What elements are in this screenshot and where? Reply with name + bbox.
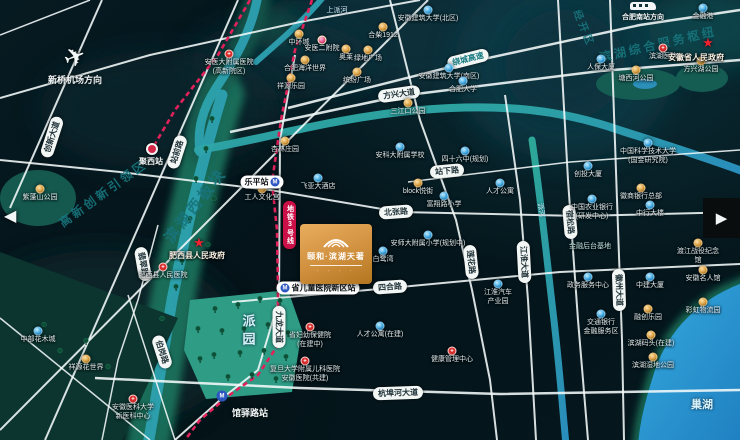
poi-landmark-dot [644, 305, 653, 314]
project-emblem-icon [319, 231, 353, 249]
poi-label: 安徽建筑大学(南区) [419, 73, 480, 82]
metro-station-badge: 乐平站M [241, 176, 284, 189]
poi-label: 金融港 [693, 13, 714, 22]
poi-landmark-dot [36, 185, 45, 194]
district-label: 经开区 [571, 7, 600, 49]
poi-label: 合肥大学 [449, 86, 477, 95]
poi-label: 滨湖码头(在建) [628, 340, 675, 349]
metro-logo-icon: M [271, 178, 280, 187]
poi-label: 四十六中(规划) [442, 156, 489, 165]
airplane-icon: ✈ [59, 39, 91, 76]
poi-label: 中国科学技术大学 (国金研究院) [620, 148, 676, 166]
poi-building-dot [597, 55, 606, 64]
poi-label: 创投大厦 [574, 171, 602, 180]
poi-building-dot [646, 201, 655, 210]
poi-building-dot [424, 231, 433, 240]
poi-landmark-dot [694, 239, 703, 248]
poi-landmark-dot [379, 23, 388, 32]
poi-label: 安医大附属医院 (高新院区) [205, 59, 254, 77]
poi-landmark-dot [699, 266, 708, 275]
poi-landmark-dot [295, 30, 304, 39]
poi-hospital-dot: + [659, 44, 668, 53]
water-label: 上派河 [327, 5, 348, 15]
poi-label: 塘西河公园 [619, 75, 654, 84]
poi-hospital-dot: + [159, 263, 168, 272]
poi-landmark-dot [637, 184, 646, 193]
poi-label: 滨湖湿地公园 [632, 362, 674, 371]
carousel-next-button[interactable]: ▶ [703, 198, 740, 238]
road-label-pill: 伯岗路 [151, 334, 174, 370]
poi-label: 三江口公园 [391, 108, 426, 117]
poi-label: 安徽医科大学 新医科中心 [112, 404, 154, 422]
poi-building-dot [314, 174, 323, 183]
poi-building-dot [424, 6, 433, 15]
poi-label: 人保大厦 [587, 64, 615, 73]
poi-label: 安徽名人馆 [686, 275, 721, 284]
poi-label: 方兴湖公园 [684, 66, 719, 75]
poi-label: 祥源乐园 [277, 83, 305, 92]
poi-landmark-dot [647, 331, 656, 340]
poi-label: 中部花木城 [21, 336, 56, 345]
road-label-pill: 莲花路 [463, 244, 479, 279]
metro-logo-icon: M [281, 284, 290, 293]
poi-label: 中建大厦 [636, 282, 664, 291]
poi-landmark-dot [281, 137, 290, 146]
poi-building-dot [494, 280, 503, 289]
poi-building-dot [496, 179, 505, 188]
district-label: 高新创新引领区 [56, 155, 151, 230]
poi-label: 杏林庄园 [271, 146, 299, 155]
carousel-prev-button[interactable]: ◀ [4, 206, 16, 226]
poi-label: 交通银行 金融服务区 [584, 319, 619, 337]
poi-label: 合柴1912 [368, 32, 398, 41]
poi-building-dot [699, 4, 708, 13]
poi-landmark-dot [287, 74, 296, 83]
poi-label: 渡江战役纪念馆 [677, 248, 719, 266]
government-star-icon: ★ [193, 235, 205, 251]
road-label-pill: 站下路 [429, 163, 464, 179]
poi-landmark-dot [414, 179, 423, 188]
poi-building-dot [34, 327, 43, 336]
road-label-pill: 方兴大道 [377, 85, 420, 104]
poi-hospital-dot: + [448, 347, 457, 356]
poi-label: 安师大附属小学(规划中) [391, 240, 466, 249]
poi-building-dot [440, 192, 449, 201]
poi-building-dot [445, 64, 454, 73]
road-label-pill: 杭埠河大道 [373, 386, 423, 401]
poi-label: 中行大楼 [636, 210, 664, 219]
poi-label: 彩虹物流园 [686, 307, 721, 316]
poi-label: 中国农业银行 (研发中心) [571, 204, 613, 222]
poi-landmark-dot [353, 68, 362, 77]
poi-hospital-dot: + [301, 357, 310, 366]
poi-label: 绿地广场 [354, 55, 382, 64]
poi-building-dot [597, 310, 606, 319]
poi-label: 安徽建筑大学(北区) [398, 15, 459, 24]
poi-building-dot [396, 143, 405, 152]
poi-building-dot [459, 77, 468, 86]
location-map: { "map": { "project": {"name": "颐和·滨湖天著"… [0, 0, 740, 440]
project-subtitle: · · · · [317, 268, 356, 274]
poi-label: 工人文化宫 [245, 194, 280, 203]
poi-building-dot [644, 139, 653, 148]
road-label-pill: 江淮大道 [516, 241, 531, 284]
next-arrow-icon: ▶ [716, 209, 728, 227]
poi-landmark-dot [632, 66, 641, 75]
poi-label: 健康管理中心 [431, 356, 473, 365]
project-name: 颐和·滨湖天著 [307, 251, 365, 262]
poi-label: 奥莱 [339, 54, 353, 63]
metro-station-dot [146, 143, 158, 155]
airport-direction-label: 新桥机场方向 [48, 73, 102, 86]
poi-hospital-dot: + [306, 323, 315, 332]
poi-label: 肥西县人民医院 [139, 272, 188, 281]
station-direction-label: 合肥南站方向 [622, 12, 664, 22]
poi-label: 富翔路小学 [427, 201, 462, 210]
government-star-icon: ★ [702, 35, 714, 51]
road-label-pill: 北张路 [379, 204, 414, 219]
poi-hospital-dot: + [129, 395, 138, 404]
road-label-pill: 创新大道 [39, 115, 64, 159]
metro-logo-icon: M [217, 391, 228, 402]
poi-label: 徽商银行总部 [620, 193, 662, 202]
water-label: 巢湖 [691, 396, 713, 412]
station-direction-marker: 合肥南站方向 [622, 2, 664, 22]
poi-label: 人才公寓 [486, 188, 514, 197]
poi-label: 安科大附属学校 [376, 152, 425, 161]
poi-label: 人才公寓(在建) [357, 331, 404, 340]
poi-landmark-dot [364, 46, 373, 55]
poi-building-dot [584, 273, 593, 282]
poi-landmark-dot [649, 353, 658, 362]
road-label-pill: 九龙大道 [273, 306, 286, 348]
park-name-label: 派园 [239, 314, 258, 350]
poi-landmark-dot [82, 355, 91, 364]
government-label: 肥西县人民政府 [169, 250, 225, 261]
road-label-pill: 徽州大道 [612, 269, 626, 311]
poi-label: block悦街 [403, 188, 433, 197]
poi-building-dot [461, 147, 470, 156]
poi-building-dot [318, 36, 327, 45]
metro-line-ribbon: 地铁3号线 [283, 201, 296, 249]
project-logo-card: 颐和·滨湖天著 · · · · [300, 224, 372, 284]
water-label: 派河 [535, 202, 547, 218]
poi-label: 飞亚大酒店 [301, 183, 336, 192]
government-label: 安徽省人民政府 [668, 52, 724, 63]
poi-landmark-dot [301, 56, 310, 65]
poi-landmark-dot [404, 99, 413, 108]
poi-landmark-dot [699, 298, 708, 307]
road-label-pill: 四合路 [373, 279, 408, 294]
poi-building-dot [584, 162, 593, 171]
airport-direction-marker: ✈ 新桥机场方向 [48, 42, 102, 86]
poi-label: 安医二附院 [305, 45, 340, 54]
project-divider [310, 265, 362, 266]
poi-label: 白鹭湾 [373, 256, 394, 265]
poi-label: 祥源花世界 [69, 364, 104, 373]
road-label-pill: 站前路 [166, 134, 189, 170]
poi-label: 政务服务中心 [567, 282, 609, 291]
poi-building-dot [376, 322, 385, 331]
poi-label: 金融后台基地 [569, 243, 611, 252]
train-icon [630, 2, 656, 10]
poi-building-dot [588, 195, 597, 204]
poi-label: 融创乐园 [634, 314, 662, 323]
poi-label: 省妇幼保健院 (在建中) [289, 332, 331, 350]
station-name: 聚西站 [139, 156, 163, 167]
poi-label: 复旦大学附属儿科医院 安徽医院(共建) [270, 366, 340, 384]
poi-label: 缤纷广场 [343, 77, 371, 86]
poi-landmark-dot [342, 45, 351, 54]
poi-label: 紫蓬山公园 [23, 194, 58, 203]
poi-label: 江淮汽车 产业园 [484, 289, 512, 307]
station-name: 馆驿路站 [232, 406, 268, 419]
station-name: 乐平站 [245, 177, 269, 188]
poi-building-dot [646, 273, 655, 282]
station-name: 省儿童医院新区站 [292, 283, 356, 294]
poi-hospital-dot: + [225, 50, 234, 59]
poi-building-dot [379, 247, 388, 256]
poi-label: 合肥海洋世界 [284, 65, 326, 74]
